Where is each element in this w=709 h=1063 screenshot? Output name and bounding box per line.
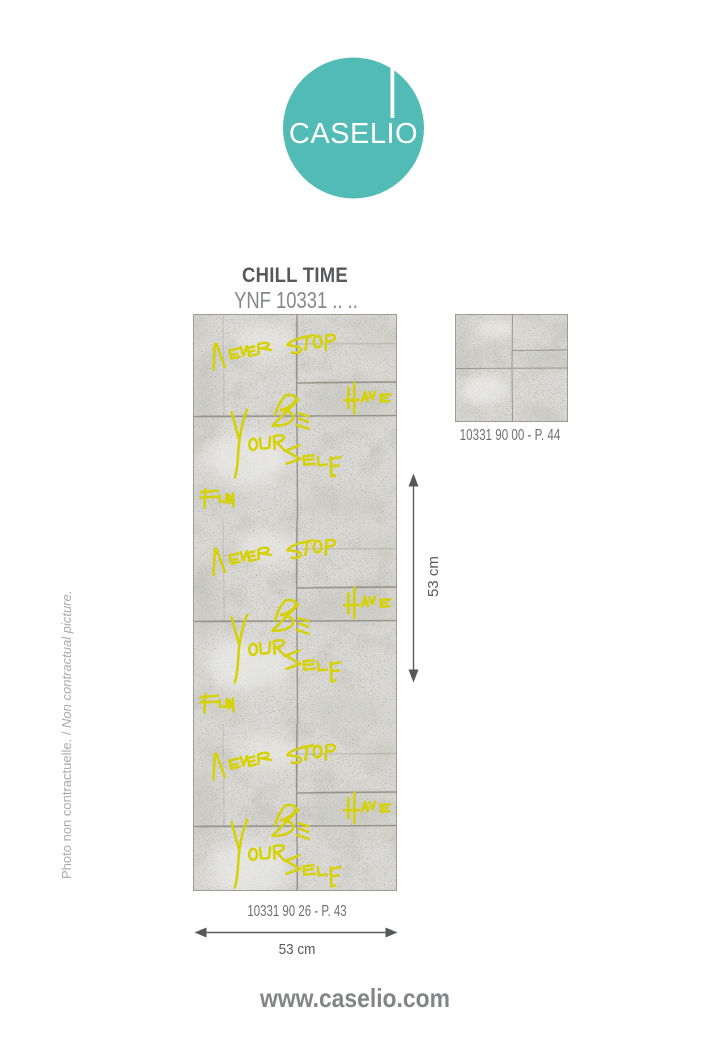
svg-text:CASELIO: CASELIO [289,118,418,150]
